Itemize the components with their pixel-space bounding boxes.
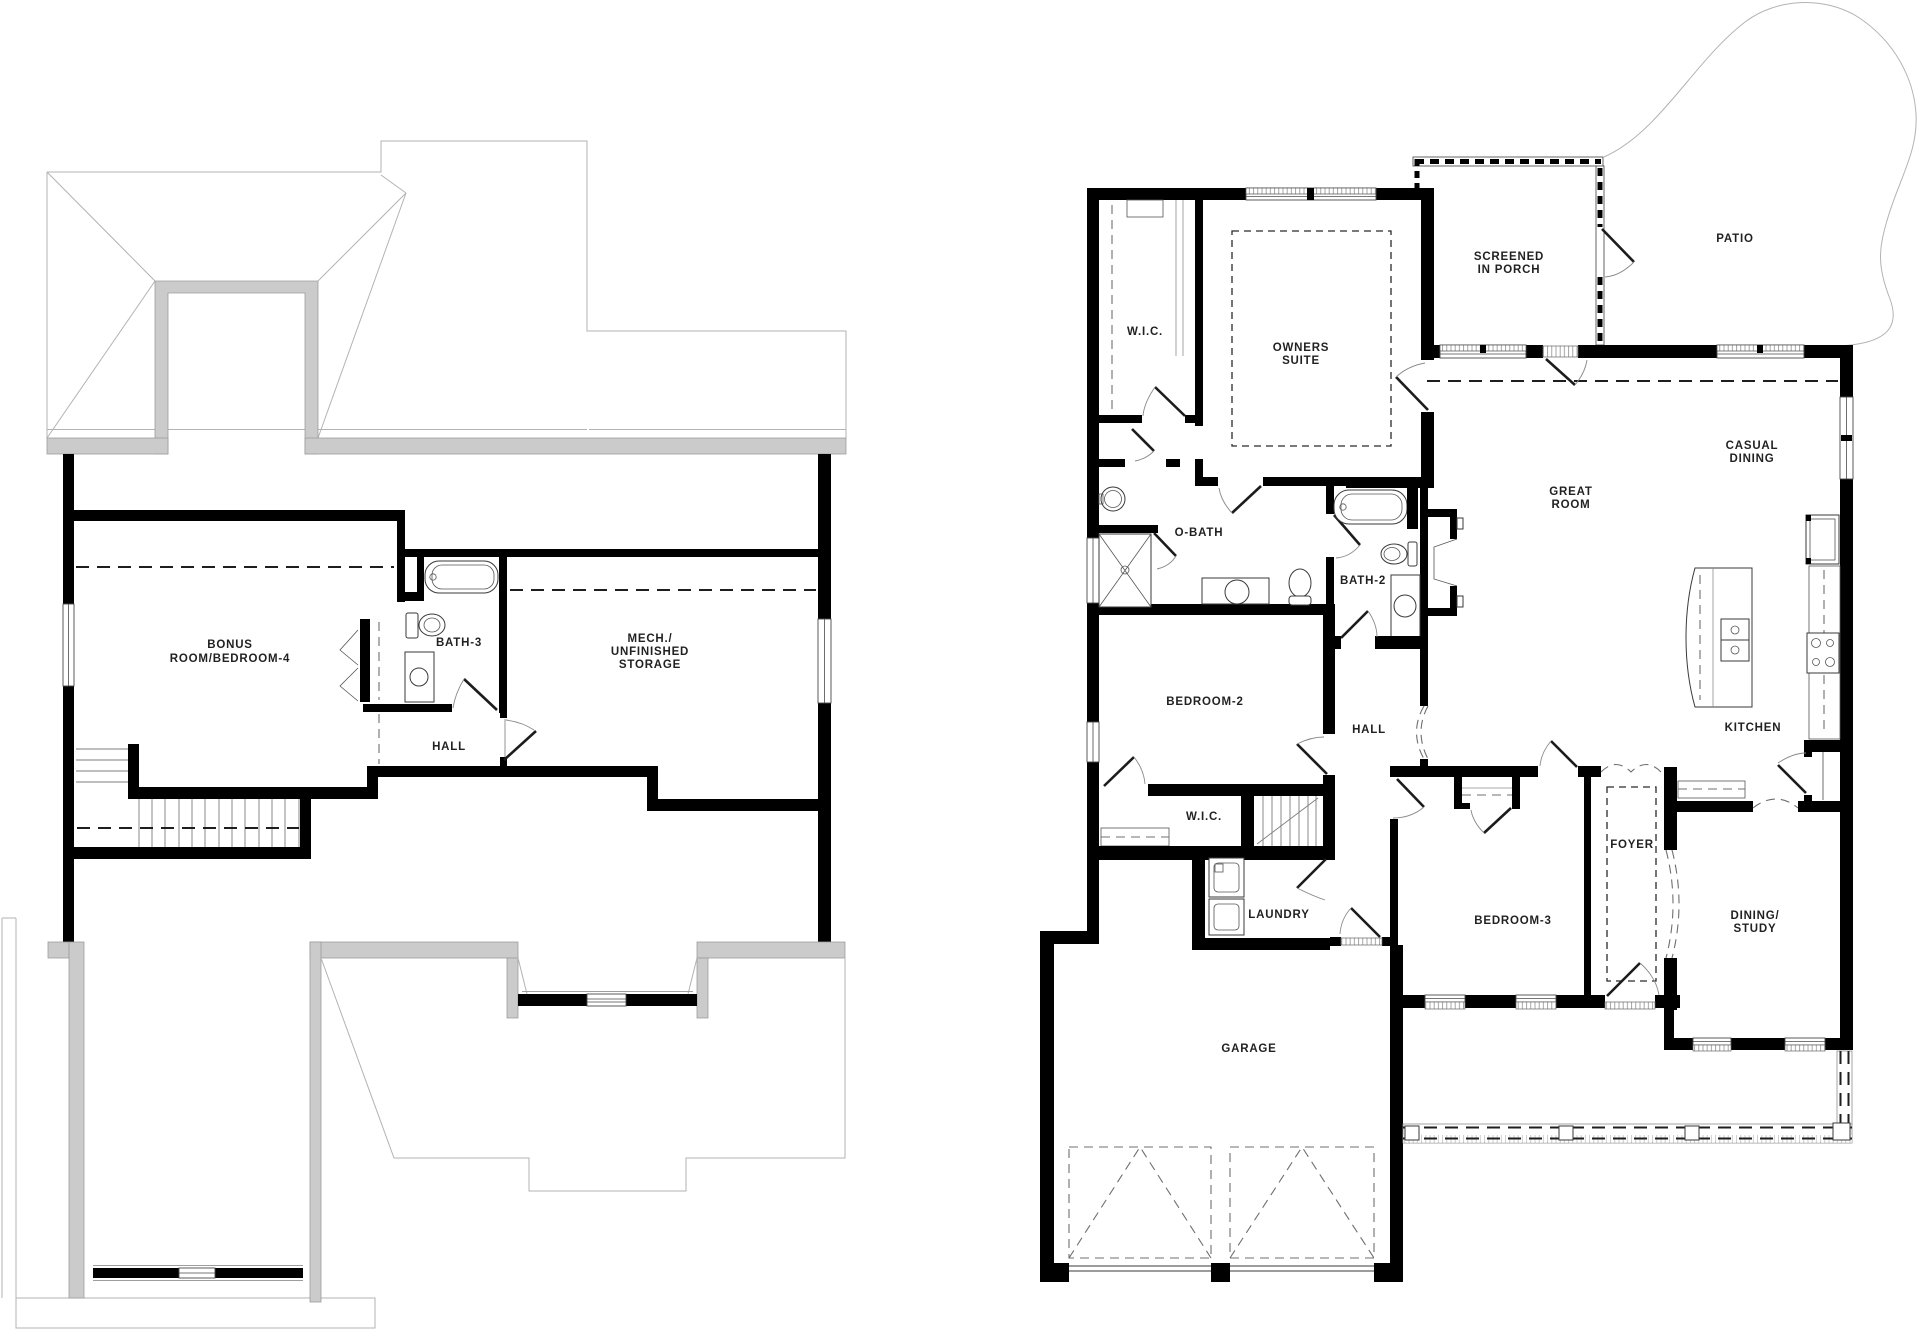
svg-text:SCREENED: SCREENED (1474, 251, 1544, 263)
svg-text:GARAGE: GARAGE (1221, 1043, 1276, 1055)
svg-text:SUITE: SUITE (1282, 355, 1320, 367)
svg-text:O-BATH: O-BATH (1175, 527, 1224, 539)
svg-text:BEDROOM-2: BEDROOM-2 (1166, 696, 1243, 708)
svg-text:KITCHEN: KITCHEN (1725, 722, 1782, 734)
svg-text:UNFINISHED: UNFINISHED (611, 646, 689, 658)
svg-text:LAUNDRY: LAUNDRY (1248, 909, 1309, 921)
svg-text:OWNERS: OWNERS (1273, 342, 1330, 354)
svg-text:BEDROOM-3: BEDROOM-3 (1474, 915, 1551, 927)
svg-text:MECH./: MECH./ (627, 633, 672, 645)
svg-text:ROOM/BEDROOM-4: ROOM/BEDROOM-4 (170, 653, 290, 665)
svg-text:HALL: HALL (432, 741, 466, 753)
svg-text:HALL: HALL (1352, 724, 1386, 736)
svg-text:ROOM: ROOM (1552, 499, 1591, 511)
svg-text:DINING: DINING (1729, 453, 1774, 465)
svg-text:W.I.C.: W.I.C. (1186, 811, 1222, 823)
svg-text:W.I.C.: W.I.C. (1127, 326, 1163, 338)
svg-text:GREAT: GREAT (1549, 486, 1592, 498)
svg-text:DINING/: DINING/ (1730, 910, 1779, 922)
svg-text:BATH-2: BATH-2 (1340, 575, 1386, 587)
svg-text:STUDY: STUDY (1734, 923, 1777, 935)
svg-text:BATH-3: BATH-3 (436, 637, 482, 649)
svg-text:FOYER: FOYER (1610, 839, 1654, 851)
svg-text:STORAGE: STORAGE (619, 659, 681, 671)
svg-text:BONUS: BONUS (207, 639, 253, 651)
svg-text:IN PORCH: IN PORCH (1478, 264, 1541, 276)
svg-text:CASUAL: CASUAL (1726, 440, 1779, 452)
svg-text:PATIO: PATIO (1716, 233, 1753, 245)
